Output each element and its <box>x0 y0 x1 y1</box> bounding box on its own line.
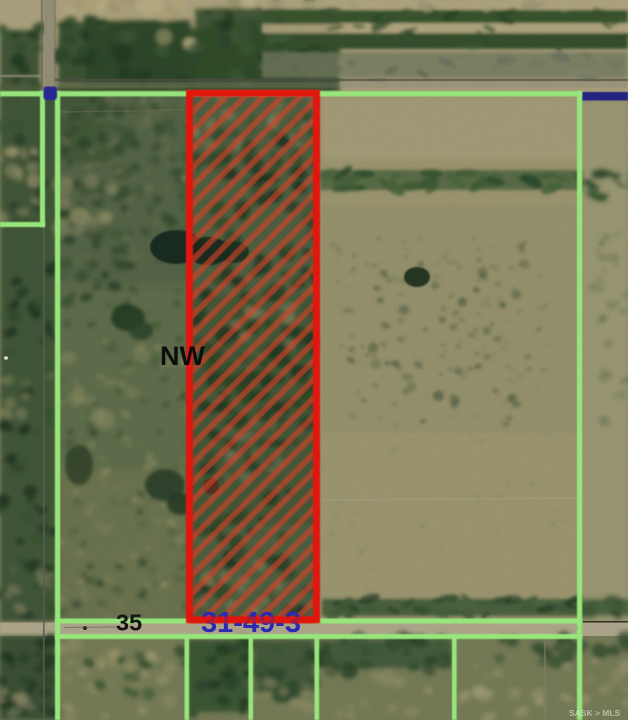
svg-text:35: 35 <box>116 610 142 636</box>
svg-text:SASK > MLS: SASK > MLS <box>569 708 621 718</box>
svg-text:NW: NW <box>160 341 205 371</box>
